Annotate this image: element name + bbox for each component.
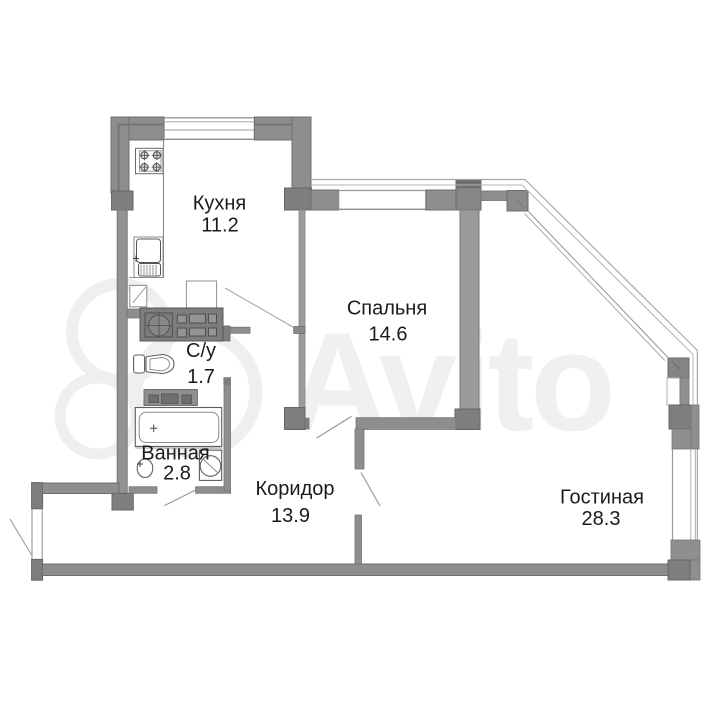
svg-text:Спальня: Спальня <box>347 298 427 320</box>
svg-text:14.6: 14.6 <box>369 324 408 346</box>
svg-text:С/у: С/у <box>186 340 216 362</box>
svg-text:2.8: 2.8 <box>163 463 191 485</box>
svg-text:Гостиная: Гостиная <box>560 487 644 509</box>
svg-text:Кухня: Кухня <box>193 193 247 215</box>
svg-text:28.3: 28.3 <box>582 508 621 530</box>
svg-text:13.9: 13.9 <box>271 505 310 527</box>
svg-text:11.2: 11.2 <box>201 215 238 237</box>
svg-text:Коридор: Коридор <box>256 478 335 500</box>
svg-text:Ванная: Ванная <box>141 443 210 465</box>
svg-text:1.7: 1.7 <box>187 366 215 388</box>
svg-text:Avito: Avito <box>287 303 612 460</box>
